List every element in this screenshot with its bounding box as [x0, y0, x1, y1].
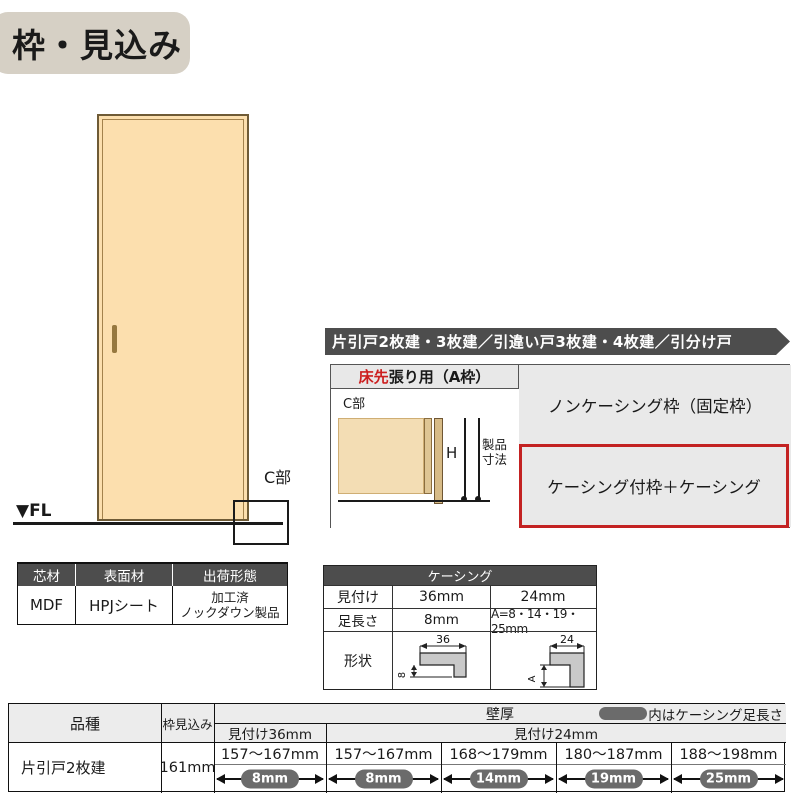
- door-elevation-figure: [97, 114, 249, 521]
- grid-line: [556, 742, 557, 793]
- product-dimension-label: 製品 寸法: [482, 437, 507, 467]
- frame-table-left-column: 床先張り用（A枠） C部 H 製品 寸法: [331, 365, 519, 527]
- header-divider-1: [214, 723, 786, 724]
- shape-24-svg: 24 A: [492, 633, 594, 689]
- leg-length-pill: 8mm: [355, 769, 413, 788]
- noncasing-frame-cell: ノンケーシング枠（固定枠）: [519, 365, 791, 444]
- casing-table-title: ケーシング: [324, 566, 596, 585]
- grid-line: [441, 742, 442, 793]
- svg-text:A: A: [527, 675, 538, 682]
- arrow-left-icon: [328, 774, 337, 784]
- leg-length-pill: 19mm: [585, 769, 643, 788]
- leg-arrow-cell: 14mm: [441, 764, 556, 793]
- wall-range-cell: 188～198mm: [671, 742, 786, 764]
- door-types-banner: 片引戸2枚建・3枚建／引違い戸3枚建・4枚建／引分け戸: [325, 328, 790, 355]
- leg-length-pill: 8mm: [241, 769, 299, 788]
- door-panel-inset: [102, 119, 244, 519]
- casing-frame-cell-highlighted: ケーシング付枠＋ケーシング: [519, 444, 789, 528]
- grid-line: [671, 742, 672, 793]
- frame-depth-column-header: 枠見込み: [161, 704, 214, 742]
- wall-range-cell: 168～179mm: [441, 742, 556, 764]
- face-width-36: 36mm: [393, 586, 491, 608]
- diagram-frame-leg: [434, 418, 443, 504]
- shape-label: 形状: [324, 632, 393, 689]
- svg-text:8: 8: [397, 671, 408, 677]
- shipping-form-header: 出荷形態: [173, 564, 287, 586]
- legend-text: 内はケーシング足長さ: [648, 704, 783, 724]
- floor-first-rest-text: 張り用（A枠）: [389, 366, 491, 387]
- face-36-subheader: 見付け36mm: [214, 723, 326, 742]
- spec-table: 品種 枠見込み 壁厚 内はケーシング足長さ 見付け36mm 見付け24mm 片引…: [8, 703, 785, 792]
- grid-line: [214, 704, 215, 793]
- floor-first-header: 床先張り用（A枠）: [331, 365, 518, 389]
- grid-line: [326, 723, 327, 793]
- surface-material-value: HPJシート: [76, 586, 173, 624]
- arrow-right-icon: [430, 774, 439, 784]
- arrow-left-icon: [443, 774, 452, 784]
- arrow-left-icon: [673, 774, 682, 784]
- wall-range-cell: 157～167mm: [214, 742, 326, 764]
- leg-length-24: A=8・14・19・25mm: [491, 609, 595, 631]
- legend-pill-icon: [599, 707, 647, 720]
- leg-length-pill: 25mm: [700, 769, 758, 788]
- shape-36-figure: 36 8: [393, 632, 491, 689]
- materials-table-body: MDF HPJシート 加工済 ノックダウン製品: [18, 586, 287, 624]
- face-24-subheader: 見付け24mm: [326, 723, 786, 742]
- grid-line: [161, 704, 162, 793]
- spec-sheet: 枠・見込み ▼FL C部 片引戸2枚建・3枚建／引違い戸3枚建・4枚建／引分け戸…: [0, 0, 800, 800]
- diagram-c-label: C部: [343, 393, 365, 412]
- dimension-h-label: H: [446, 444, 457, 462]
- product-name-cell: 片引戸2枚建: [9, 742, 161, 793]
- header-divider-2: [9, 742, 786, 743]
- floor-level-label: ▼FL: [16, 501, 52, 521]
- wall-range-cell: 180～187mm: [556, 742, 671, 764]
- svg-text:24: 24: [560, 633, 574, 646]
- leg-length-pill: 14mm: [470, 769, 528, 788]
- leg-length-36: 8mm: [393, 609, 491, 631]
- c-section-diagram: C部 H 製品 寸法: [331, 389, 519, 529]
- c-section-detail-box: [233, 500, 289, 545]
- arrow-left-icon: [216, 774, 225, 784]
- core-material-value: MDF: [18, 586, 76, 624]
- leg-arrow-cell: 25mm: [671, 764, 786, 793]
- range-arrow-divider: [214, 764, 786, 765]
- materials-table: 芯材 表面材 出荷形態 MDF HPJシート 加工済 ノックダウン製品: [17, 562, 288, 625]
- dimension-line-product: [478, 418, 480, 500]
- diagram-door-panel: [338, 418, 424, 494]
- diagram-frame-strip: [424, 418, 432, 494]
- dimension-line-h: [464, 418, 466, 500]
- arrow-right-icon: [545, 774, 554, 784]
- shape-36-svg: 36 8: [394, 633, 490, 689]
- arrow-left-icon: [558, 774, 567, 784]
- page-title-badge: 枠・見込み: [0, 12, 190, 74]
- surface-material-header: 表面材: [76, 564, 173, 586]
- dimension-dot-product: [475, 496, 481, 502]
- leg-arrow-cell: 8mm: [326, 764, 441, 793]
- casing-table: ケーシング 見付け 36mm 24mm 足長さ 8mm A=8・14・19・25…: [323, 565, 597, 690]
- frame-depth-cell: 161mm: [161, 742, 214, 793]
- door-handle-icon: [112, 325, 117, 353]
- svg-text:36: 36: [436, 633, 450, 646]
- leg-length-label: 足長さ: [324, 609, 393, 631]
- arrow-right-icon: [315, 774, 324, 784]
- door-types-banner-text: 片引戸2枚建・3枚建／引違い戸3枚建・4枚建／引分け戸: [332, 331, 732, 352]
- product-column-header: 品種: [9, 704, 161, 742]
- c-section-label: C部: [264, 464, 291, 488]
- materials-table-header: 芯材 表面材 出荷形態: [18, 564, 287, 586]
- floor-first-red-text: 床先: [359, 366, 389, 387]
- diagram-baseline: [338, 500, 490, 502]
- frame-table-right-column: ノンケーシング枠（固定枠） ケーシング付枠＋ケーシング: [519, 365, 791, 527]
- shipping-form-value: 加工済 ノックダウン製品: [173, 586, 287, 624]
- leg-arrow-cell: 8mm: [214, 764, 326, 793]
- shape-row: 形状 36 8: [324, 631, 596, 689]
- leg-length-row: 足長さ 8mm A=8・14・19・25mm: [324, 608, 596, 631]
- wall-range-cell: 157～167mm: [326, 742, 441, 764]
- core-material-header: 芯材: [18, 564, 76, 586]
- page-title: 枠・見込み: [12, 19, 182, 67]
- wall-thickness-header: 壁厚 内はケーシング足長さ: [214, 704, 786, 723]
- shape-24-figure: 24 A: [491, 632, 595, 689]
- leg-arrow-cell: 19mm: [556, 764, 671, 793]
- arrow-right-icon: [775, 774, 784, 784]
- legend: 内はケーシング足長さ: [599, 704, 783, 723]
- dimension-dot-h: [461, 496, 467, 502]
- arrow-right-icon: [660, 774, 669, 784]
- face-width-label: 見付け: [324, 586, 393, 608]
- frame-type-table: 床先張り用（A枠） C部 H 製品 寸法 ノンケーシング: [330, 364, 790, 528]
